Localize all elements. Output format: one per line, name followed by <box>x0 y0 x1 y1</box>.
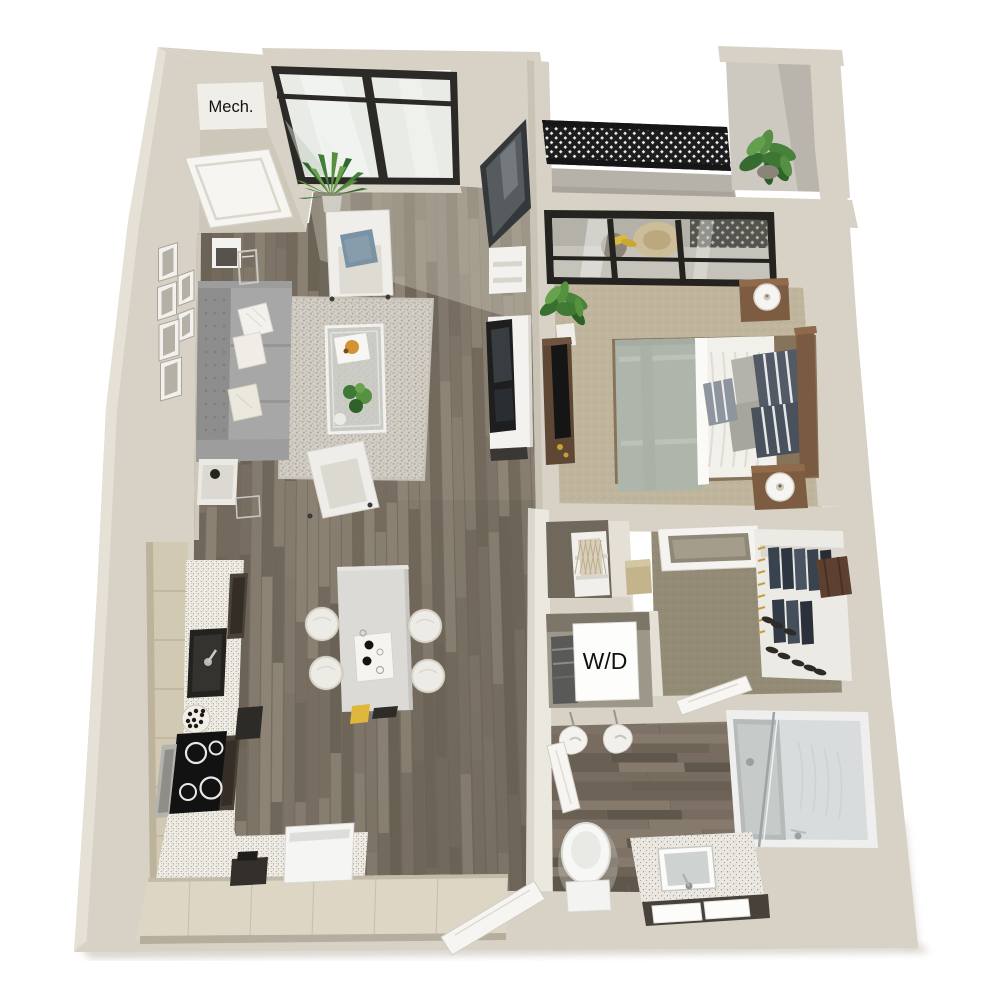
svg-text:W/D: W/D <box>583 648 628 674</box>
svg-text:Mech.: Mech. <box>209 98 254 116</box>
